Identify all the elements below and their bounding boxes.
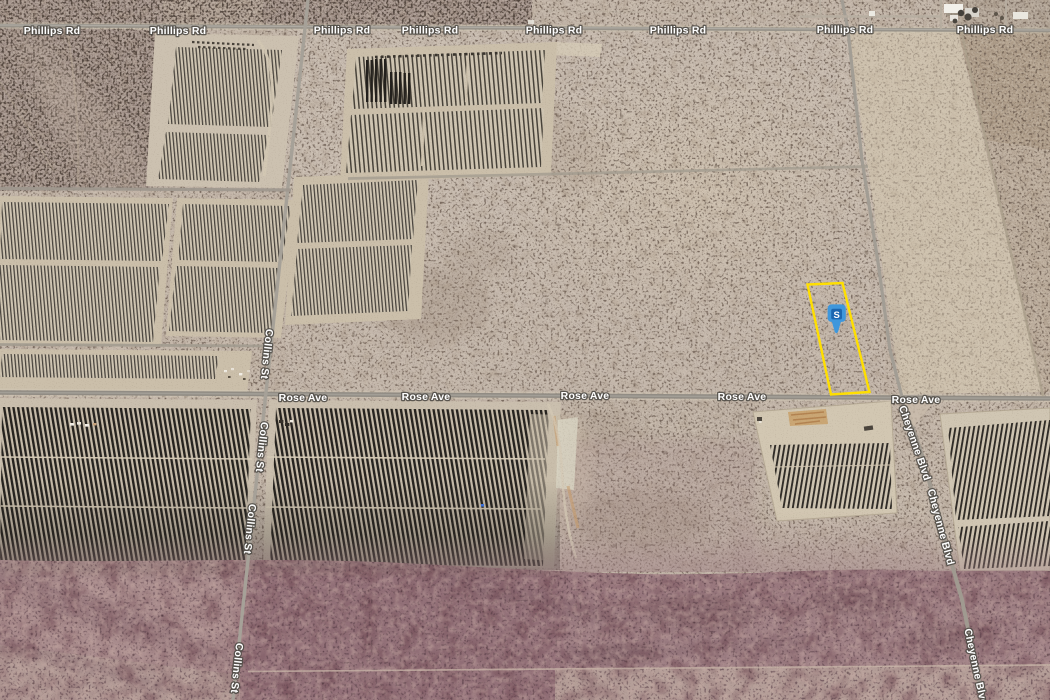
svg-text:Phillips Rd: Phillips Rd (957, 24, 1013, 36)
svg-text:Rose Ave: Rose Ave (279, 392, 328, 404)
svg-text:Phillips Rd: Phillips Rd (314, 25, 370, 37)
svg-text:Phillips Rd: Phillips Rd (402, 25, 458, 37)
svg-text:Phillips Rd: Phillips Rd (24, 25, 80, 37)
svg-text:Rose Ave: Rose Ave (402, 391, 451, 403)
svg-text:Rose Ave: Rose Ave (892, 394, 941, 406)
svg-text:Rose Ave: Rose Ave (718, 391, 767, 403)
svg-text:S: S (834, 310, 840, 321)
svg-text:Rose Ave: Rose Ave (561, 390, 610, 402)
svg-text:Phillips Rd: Phillips Rd (650, 25, 706, 37)
svg-text:Phillips Rd: Phillips Rd (526, 25, 582, 37)
svg-text:Phillips Rd: Phillips Rd (150, 25, 206, 37)
svg-text:Phillips Rd: Phillips Rd (817, 24, 873, 36)
